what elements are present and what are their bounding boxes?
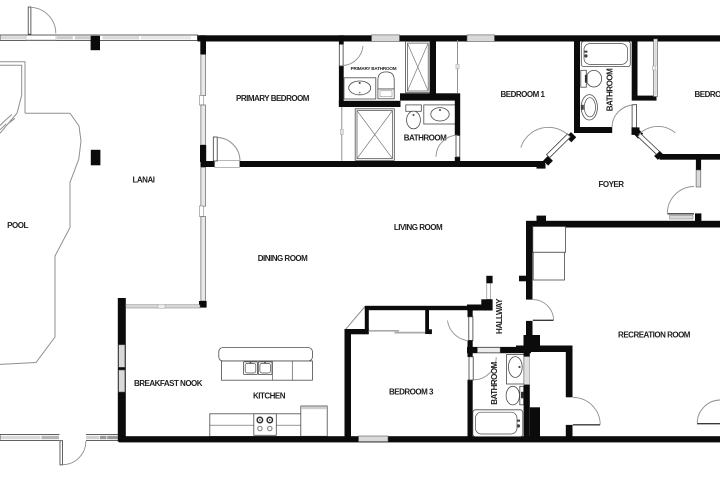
svg-text:FOYER: FOYER bbox=[598, 180, 624, 189]
svg-text:KITCHEN: KITCHEN bbox=[253, 392, 286, 401]
svg-text:RECREATION ROOM: RECREATION ROOM bbox=[618, 331, 691, 340]
svg-text:HALLWAY: HALLWAY bbox=[495, 298, 504, 334]
svg-text:BREAKFAST NOOK: BREAKFAST NOOK bbox=[134, 379, 203, 388]
svg-text:BEDROOM 2: BEDROOM 2 bbox=[695, 90, 720, 99]
svg-text:DINING ROOM: DINING ROOM bbox=[258, 254, 308, 263]
svg-text:BEDROOM 1: BEDROOM 1 bbox=[501, 90, 546, 99]
svg-text:LANAI: LANAI bbox=[133, 176, 155, 185]
svg-text:POOL: POOL bbox=[7, 221, 28, 230]
svg-text:BATHROOM: BATHROOM bbox=[606, 68, 615, 111]
svg-text:BATHROOM: BATHROOM bbox=[490, 361, 499, 404]
svg-text:PRIMARY BEDROOM: PRIMARY BEDROOM bbox=[236, 94, 310, 103]
svg-text:PRIMARY BATHROOM: PRIMARY BATHROOM bbox=[351, 66, 397, 71]
svg-text:BATHROOM: BATHROOM bbox=[404, 134, 447, 143]
svg-text:BEDROOM 3: BEDROOM 3 bbox=[389, 388, 434, 397]
svg-text:LIVING ROOM: LIVING ROOM bbox=[394, 223, 443, 232]
